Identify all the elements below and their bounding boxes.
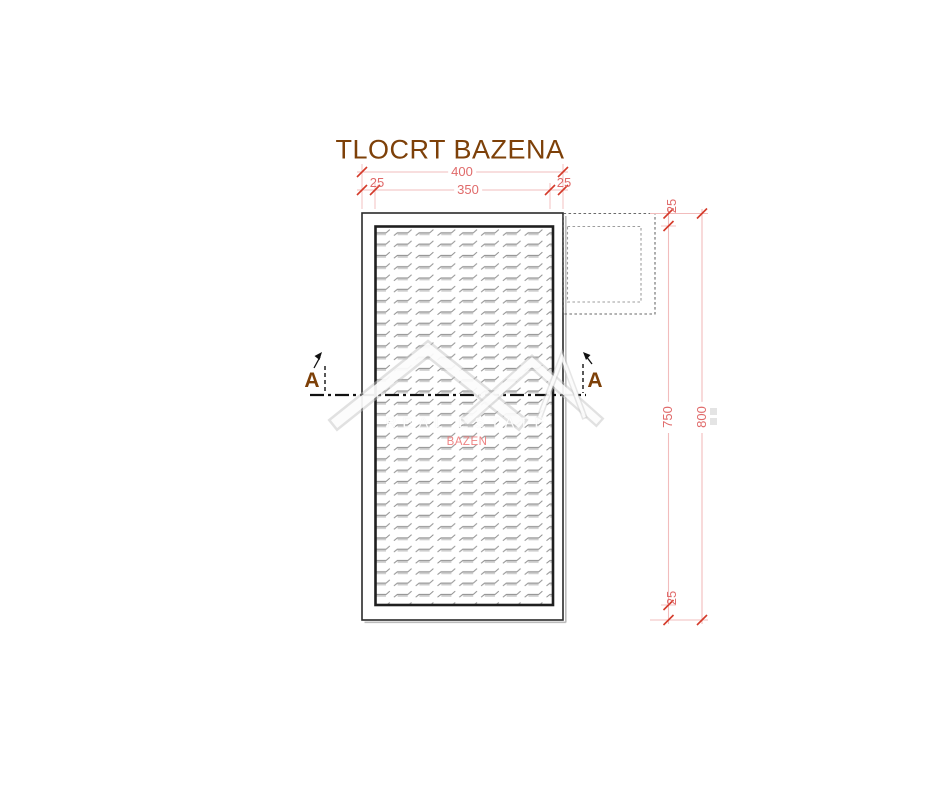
dim-top-left-wall: 25 xyxy=(370,176,384,190)
dim-right-bottom-wall: 25 xyxy=(665,591,679,605)
dim-top-inner-width: 350 xyxy=(454,183,482,197)
pool-label: BAZEN xyxy=(447,436,488,448)
section-label-left: A xyxy=(304,369,319,393)
section-arrow-right xyxy=(583,352,592,364)
dim-right-total-height: 800 xyxy=(695,402,709,432)
dim-right-inner-height: 750 xyxy=(661,402,675,432)
skimmer-box-inner-dashed xyxy=(568,227,642,303)
section-arrow-left xyxy=(314,352,322,368)
pool-plan-drawing xyxy=(0,0,935,790)
section-label-right: A xyxy=(587,369,602,393)
watermark-text: REAL ESTATE xyxy=(386,415,551,432)
dim-right-top-wall: 25 xyxy=(665,199,679,213)
dim-top-right-wall: 25 xyxy=(557,176,571,190)
drawing-title: TLOCRT BAZENA xyxy=(335,135,564,166)
dim-top-total: 400 xyxy=(448,165,476,179)
